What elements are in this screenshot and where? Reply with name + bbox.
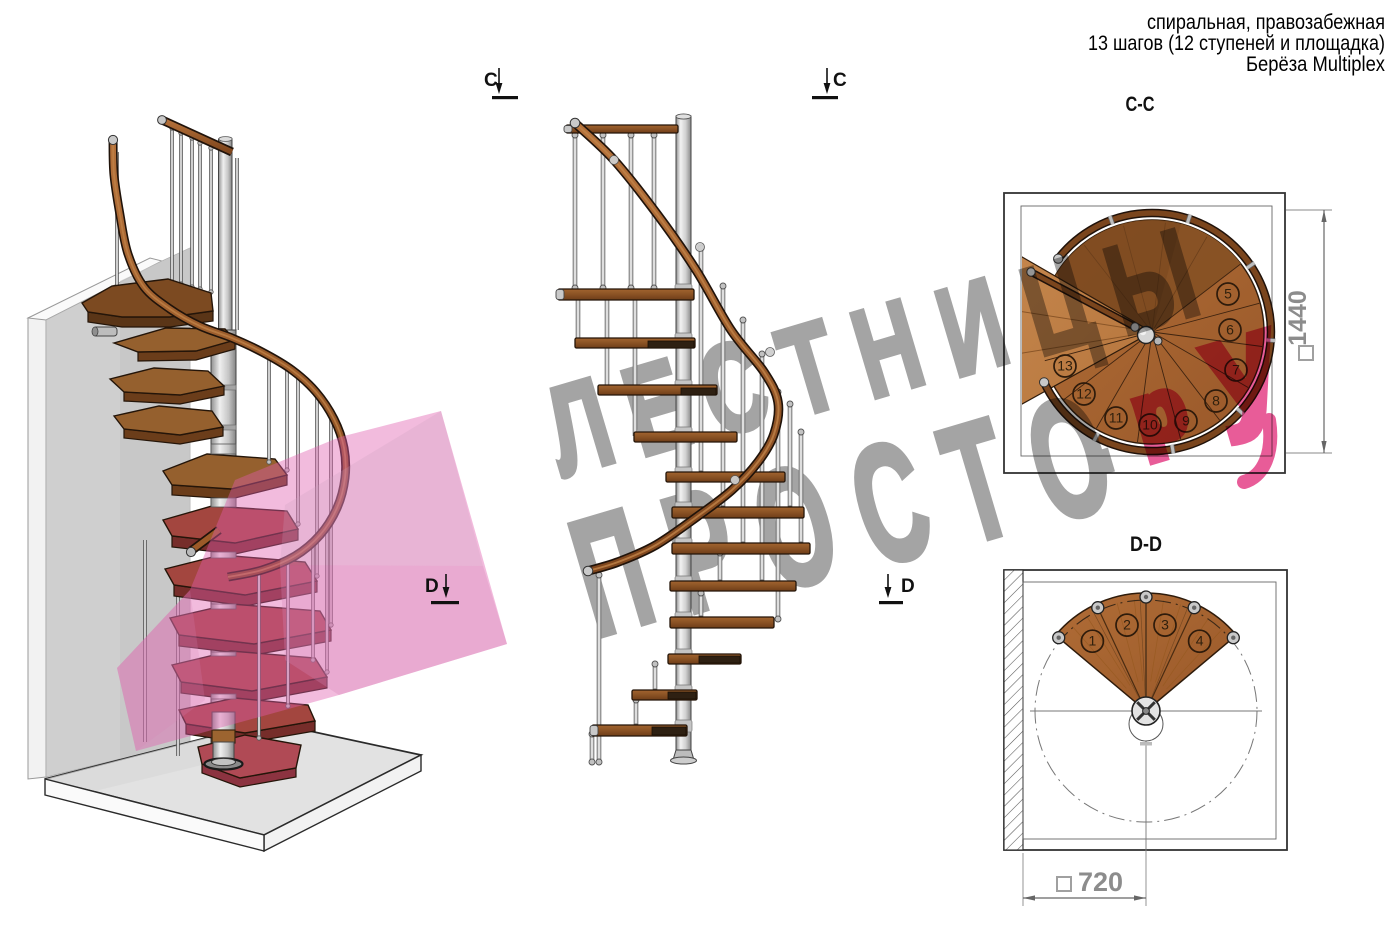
svg-text:3: 3 [1161,617,1169,633]
svg-text:D: D [425,576,439,597]
svg-text:C-C: C-C [1126,93,1155,116]
svg-text:13 шагов (12 ступеней и площад: 13 шагов (12 ступеней и площадка) [1088,32,1385,55]
svg-text:D: D [901,576,915,597]
svg-text:Берёза Multiplex: Берёза Multiplex [1246,53,1385,76]
svg-text:720: 720 [1078,867,1123,897]
svg-text:1: 1 [1089,633,1097,649]
svg-text:D-D: D-D [1130,533,1162,556]
svg-text:C: C [833,70,847,91]
svg-text:C: C [484,70,498,91]
svg-text:спиральная, правозабежная: спиральная, правозабежная [1147,11,1385,34]
svg-text:2: 2 [1123,617,1131,633]
svg-text:4: 4 [1196,633,1204,649]
